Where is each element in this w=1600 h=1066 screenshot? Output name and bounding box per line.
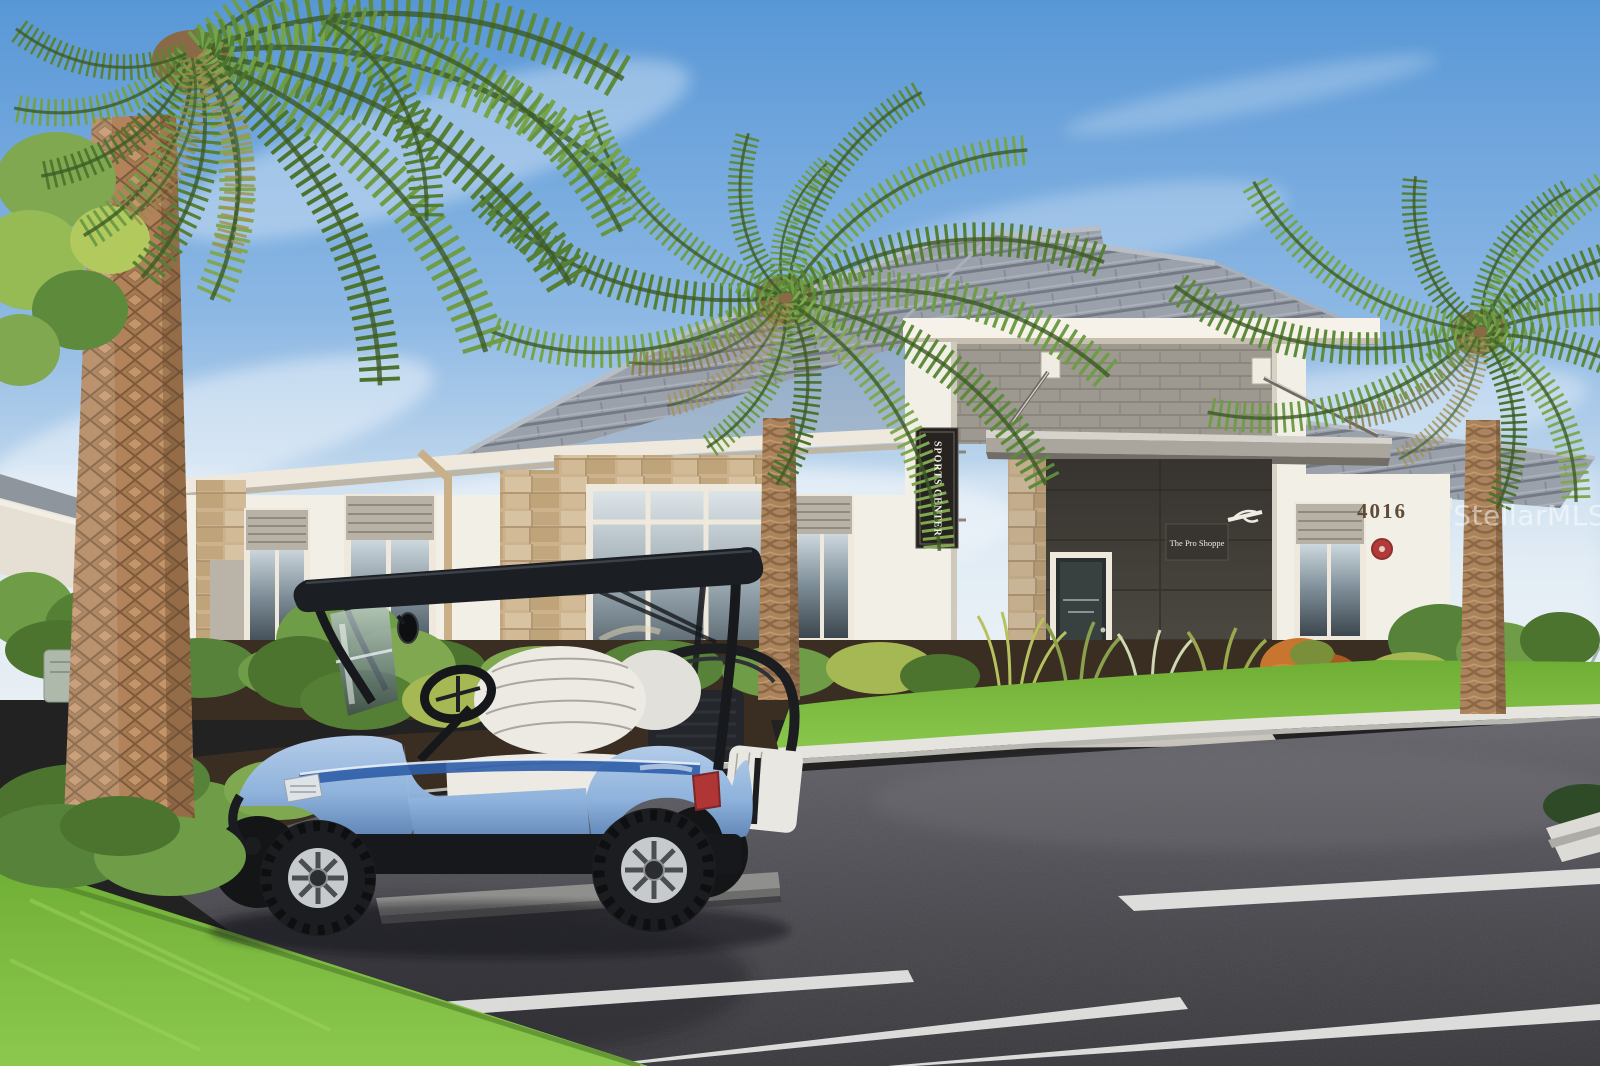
address-badge	[1372, 539, 1392, 559]
property-photo: SPORTS CENTER The Pro Shoppe 4016 Stella…	[0, 0, 1600, 1066]
window	[1294, 502, 1366, 642]
scene-illustration	[0, 0, 1600, 1066]
window	[792, 494, 854, 644]
